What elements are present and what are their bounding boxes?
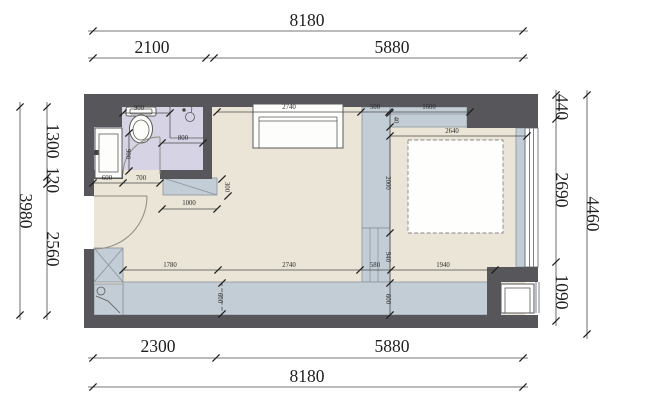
dim-right-seg2: 2690	[552, 173, 572, 208]
dim-bench-right: 600	[384, 294, 391, 305]
bed	[408, 140, 503, 233]
dim-bottom-seg2: 5880	[375, 336, 410, 356]
dim-bench-left: 600	[216, 293, 223, 304]
dim-shoe-depth: 300	[223, 182, 230, 193]
dim-left-seg1: 1300	[43, 124, 63, 159]
dim-walkway: 940	[384, 252, 391, 263]
dim-bottom-total: 8180	[290, 366, 325, 386]
wall-top-right-column	[467, 94, 538, 128]
dim-left-seg2: 120	[43, 167, 63, 194]
dim-bottom-a: 1780	[163, 262, 177, 269]
bay-wall-top	[487, 267, 538, 282]
dim-shower-width: 800	[178, 135, 189, 142]
side-strip	[516, 128, 525, 267]
duct-block	[94, 107, 122, 127]
dim-vanity-width: 600	[102, 175, 113, 182]
mop-area	[94, 284, 123, 315]
dim-bed-zone-width: 2640	[445, 128, 459, 135]
dim-closet-width: 500	[370, 104, 381, 111]
dim-left-seg3: 2560	[43, 232, 63, 267]
dim-toilet-zone: 900	[134, 105, 145, 112]
dim-bottom-d: 1940	[436, 262, 450, 269]
dim-sofa-width: 2740	[282, 104, 296, 111]
partition-closet-upper	[362, 107, 390, 228]
wall-bottom	[84, 315, 538, 328]
right-window	[525, 128, 538, 267]
dim-top-total: 8180	[290, 10, 325, 30]
wall-left-upper	[84, 94, 94, 196]
window-bench	[123, 282, 495, 315]
dim-headboard-gap: 40	[392, 117, 399, 124]
dim-right-seg3: 1090	[552, 275, 572, 310]
wall-bathroom-right	[203, 107, 212, 178]
wall-bathroom-bottom-right	[160, 170, 212, 179]
floor-plan-page: 8180 2100 5880 2300 5880 8180 1300 120 2…	[0, 0, 650, 402]
bay-wall-left	[487, 282, 501, 315]
floor-plan-drawing: 8180 2100 5880 2300 5880 8180 1300 120 2…	[0, 0, 650, 402]
dim-right-seg1: 440	[552, 94, 572, 121]
dim-headboard-cabinet: 1600	[422, 104, 436, 111]
dim-top-seg2: 5880	[375, 37, 410, 57]
dim-bottom-b: 2740	[282, 262, 296, 269]
dim-bath-door: 700	[136, 175, 147, 182]
dim-right-total: 4460	[583, 197, 603, 232]
dim-bottom-c: 580	[370, 262, 381, 269]
dim-top-seg1: 2100	[135, 37, 170, 57]
dim-left-total: 3980	[16, 194, 36, 229]
dim-bath-side: 900	[124, 149, 131, 160]
dim-entry-clearance: 1000	[182, 200, 196, 207]
sink-icon	[94, 128, 122, 178]
sofa	[253, 104, 343, 148]
dim-bed-length: 2000	[384, 176, 391, 190]
dim-bottom-seg1: 2300	[141, 336, 176, 356]
